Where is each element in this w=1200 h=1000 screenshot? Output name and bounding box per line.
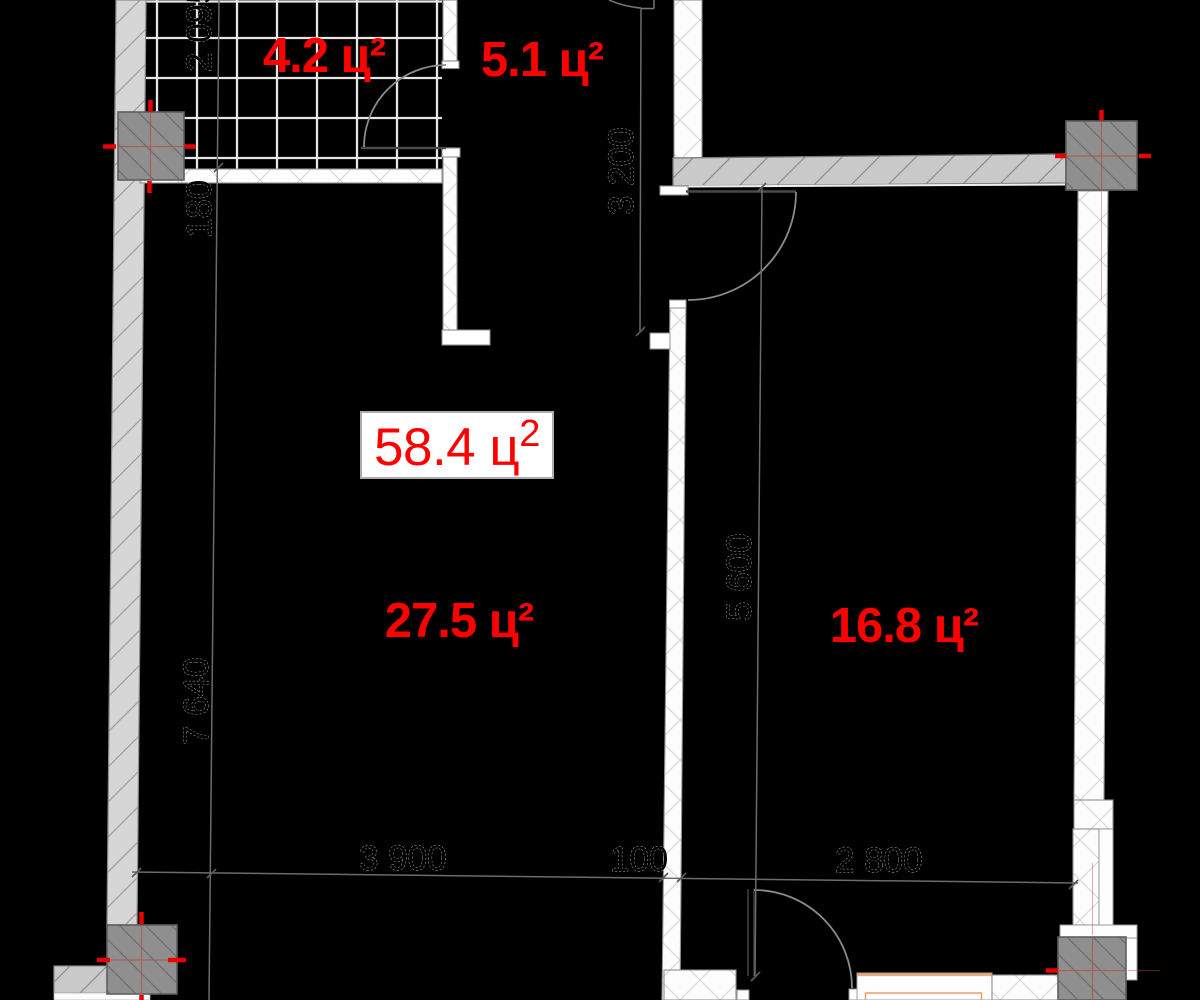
svg-text:5 600: 5 600: [720, 533, 759, 621]
svg-text:3 900: 3 900: [359, 839, 447, 878]
svg-text:5.1 ц²: 5.1 ц²: [481, 33, 604, 87]
svg-text:2 800: 2 800: [835, 841, 923, 880]
svg-text:100: 100: [610, 840, 668, 879]
svg-text:16.8 ц²: 16.8 ц²: [830, 599, 979, 653]
svg-text:3 200: 3 200: [602, 127, 641, 215]
svg-text:7 640: 7 640: [177, 657, 216, 745]
svg-text:2 095: 2 095: [180, 0, 219, 72]
svg-text:58.4 ц2: 58.4 ц2: [374, 413, 540, 477]
svg-text:180: 180: [180, 180, 219, 238]
svg-text:4.2 ц²: 4.2 ц²: [263, 29, 386, 83]
svg-text:27.5 ц²: 27.5 ц²: [385, 594, 534, 648]
